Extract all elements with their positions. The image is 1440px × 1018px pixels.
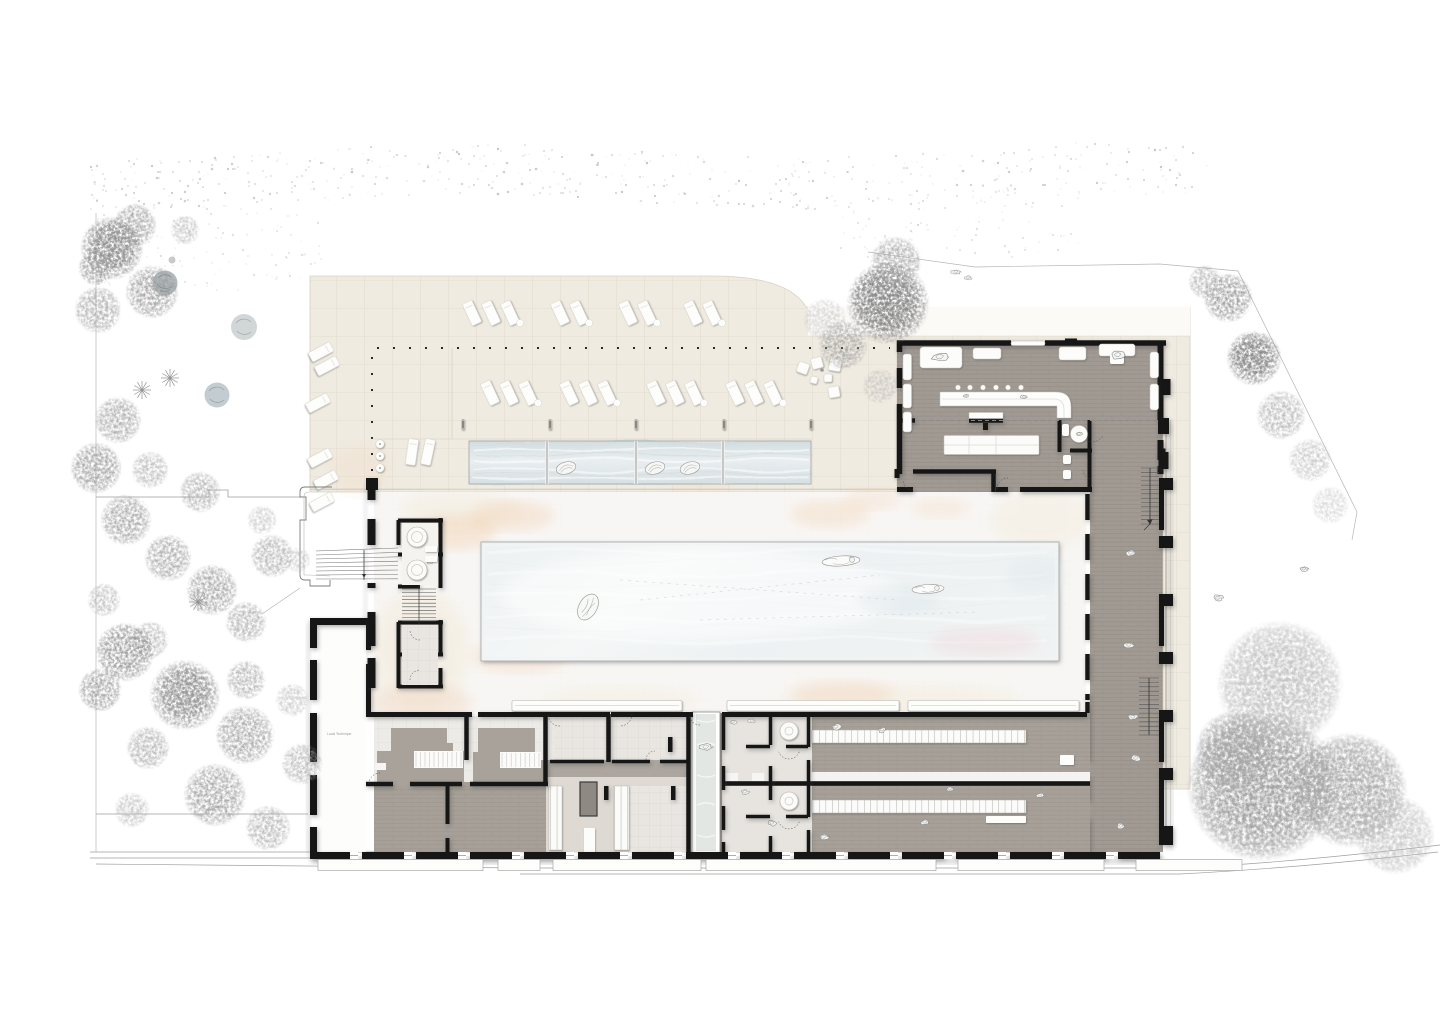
svg-text:Local Technique: Local Technique (327, 732, 352, 736)
